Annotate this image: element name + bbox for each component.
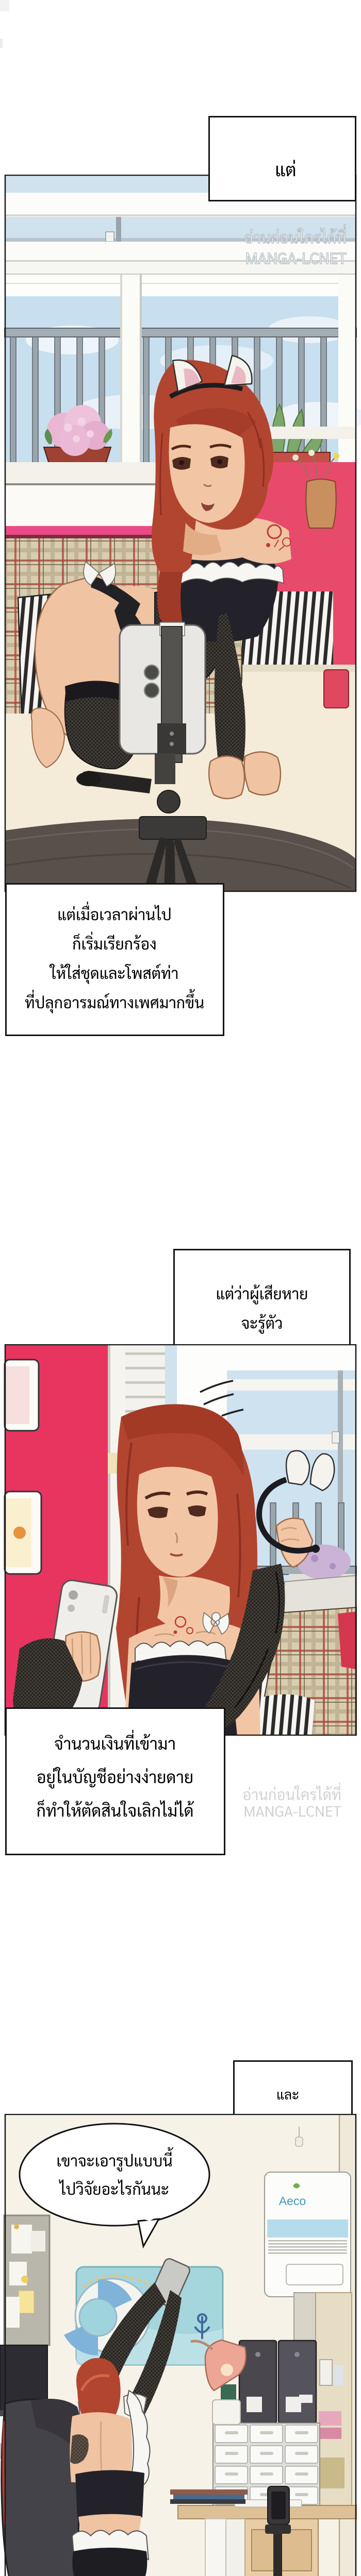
svg-text:Aeco: Aeco (279, 2194, 306, 2208)
